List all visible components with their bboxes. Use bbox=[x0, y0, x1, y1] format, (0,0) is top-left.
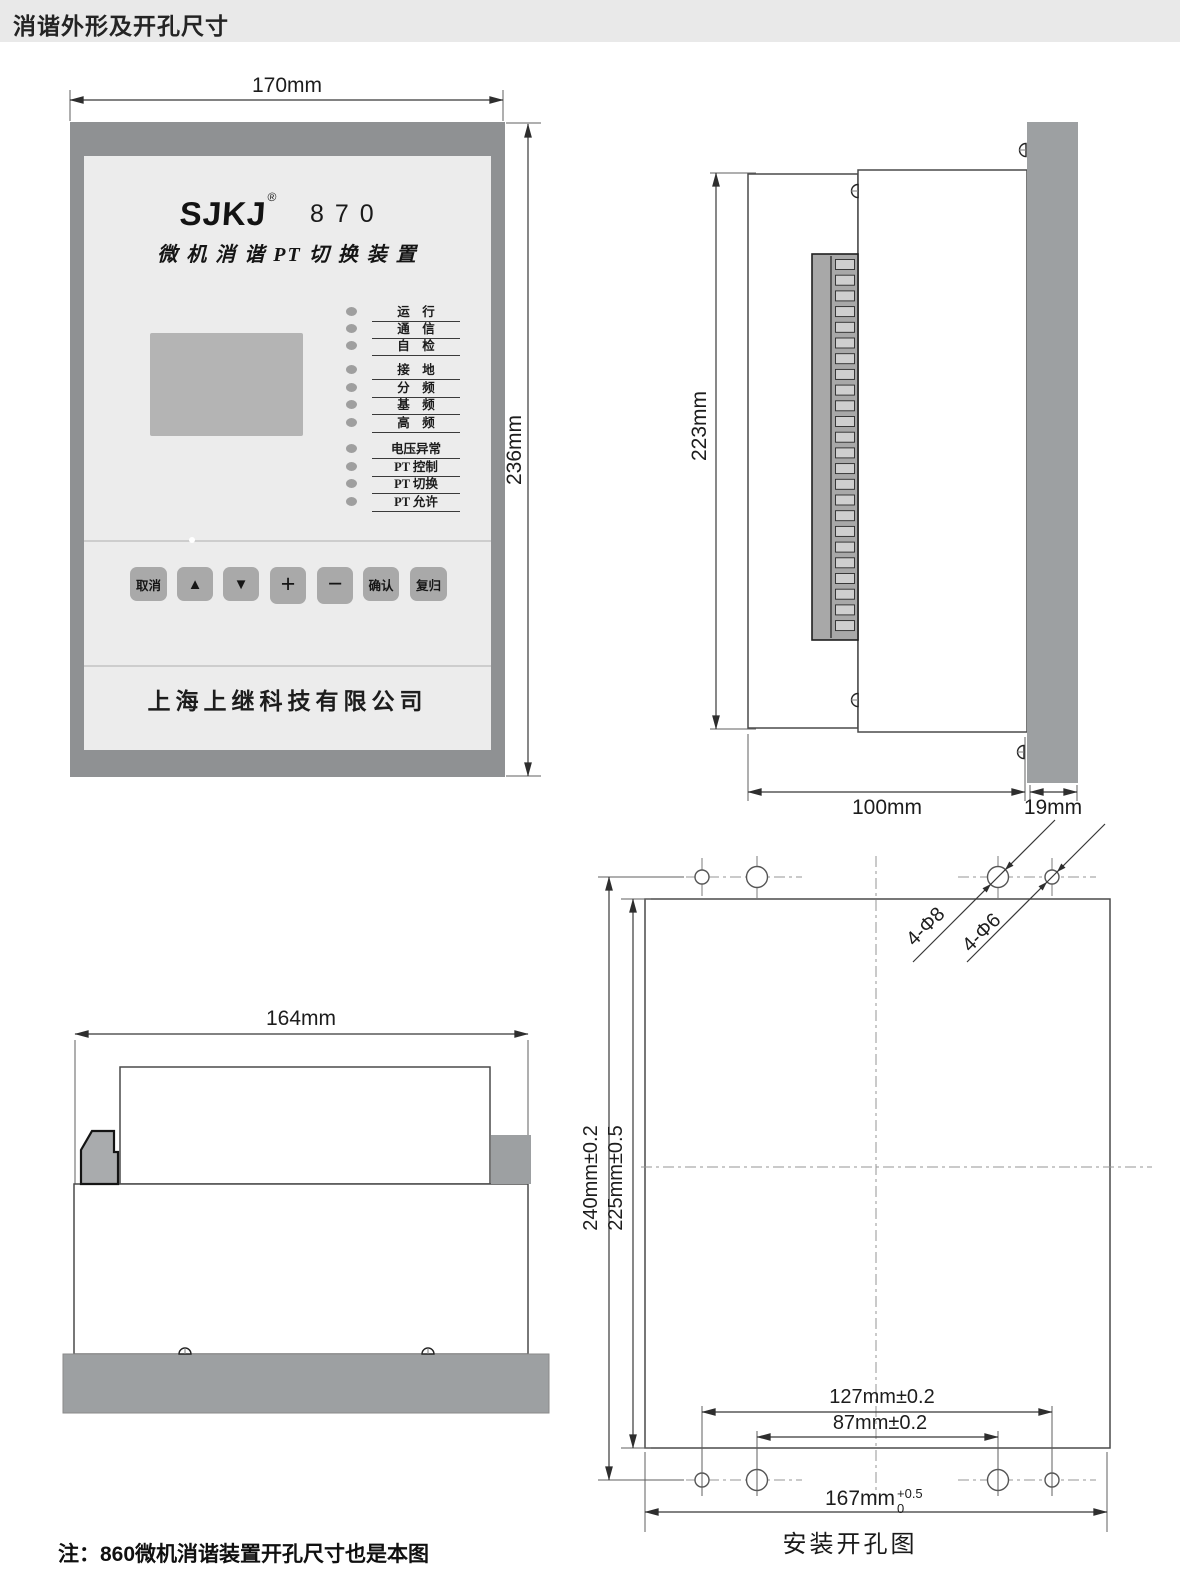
mounting-hole-large bbox=[747, 867, 768, 888]
side-rear-body-outline bbox=[748, 174, 858, 728]
device-title: 微 机 消 谐 PT 切 换 装 置 bbox=[84, 238, 491, 267]
top-view: 164mm bbox=[63, 1007, 549, 1413]
page-title: 消谐外形及开孔尺寸 bbox=[13, 7, 229, 41]
mounting-hole-small bbox=[695, 870, 709, 884]
top-right-block bbox=[491, 1135, 531, 1184]
button-up-icon: ▲ bbox=[177, 567, 213, 601]
led-indicator-icon bbox=[346, 400, 357, 409]
brand-logo: SJKJ® bbox=[178, 190, 276, 233]
mounting-hole-large bbox=[988, 867, 1009, 888]
page: 消谐外形及开孔尺寸 SJKJ® 870 微 机 消 谐 PT 切 换 装 置 运… bbox=[0, 0, 1180, 1575]
panel-divider bbox=[84, 665, 491, 667]
led-indicator-icon bbox=[346, 324, 357, 333]
led-indicator-icon bbox=[346, 444, 357, 453]
side-terminal-block bbox=[812, 254, 858, 640]
front-panel-face: SJKJ® 870 微 机 消 谐 PT 切 换 装 置 运 行 通 信 自 检… bbox=[84, 156, 491, 750]
mounting-holes bbox=[695, 867, 1059, 1491]
led-row: 接 地 bbox=[346, 361, 460, 377]
top-mounting-clip bbox=[81, 1131, 118, 1184]
button-plus: + bbox=[270, 567, 306, 604]
company-name: 上海上继科技有限公司 bbox=[84, 682, 491, 716]
centerlines bbox=[641, 856, 1152, 1503]
front-view-device: SJKJ® 870 微 机 消 谐 PT 切 换 装 置 运 行 通 信 自 检… bbox=[70, 122, 505, 777]
screw-icon bbox=[179, 1348, 434, 1354]
led-indicator-icon bbox=[346, 479, 357, 488]
install-view: 4-Φ8 4-Φ6 240mm±0.2 225mm±0.5 127mm±0.2 … bbox=[580, 820, 1152, 1532]
led-row: 电压异常 bbox=[346, 440, 460, 456]
hole-leader-large: 4-Φ8 bbox=[902, 820, 1055, 962]
led-label: 高 频 bbox=[372, 412, 460, 433]
cutout-width-tol-lower: 0 bbox=[897, 1501, 904, 1516]
led-indicator-icon bbox=[346, 307, 357, 316]
hole-leader-small: 4-Φ6 bbox=[958, 824, 1105, 962]
led-row: PT 允许 bbox=[346, 493, 460, 509]
top-front-panel-bar bbox=[63, 1354, 549, 1413]
small-holes-label: 4-Φ6 bbox=[958, 909, 1005, 956]
led-indicator-icon bbox=[346, 341, 357, 350]
top-rear-body-outline bbox=[120, 1067, 490, 1184]
mounting-hole-large bbox=[988, 1470, 1009, 1491]
front-height-dim-label: 236mm bbox=[503, 415, 526, 485]
led-indicator-icon bbox=[346, 365, 357, 374]
mounting-hole-small bbox=[1045, 870, 1059, 884]
hole-span-vertical-dim-label: 240mm±0.2 bbox=[580, 1125, 602, 1230]
front-width-dim-label: 170mm bbox=[252, 74, 322, 97]
led-row: 基 频 bbox=[346, 396, 460, 412]
led-row: PT 切换 bbox=[346, 475, 460, 491]
button-down-icon: ▼ bbox=[223, 567, 259, 601]
mounting-hole-small bbox=[695, 1473, 709, 1487]
led-row: 自 检 bbox=[346, 337, 460, 353]
side-main-body-outline bbox=[858, 170, 1027, 732]
registered-mark-icon: ® bbox=[267, 190, 277, 204]
cutout-width-tol-upper: +0.5 bbox=[897, 1486, 923, 1501]
footnote: 注：860微机消谐装置开孔尺寸也是本图 bbox=[58, 1538, 429, 1568]
led-row: 高 频 bbox=[346, 414, 460, 430]
led-indicator-icon bbox=[346, 383, 357, 392]
led-indicator-icon bbox=[346, 497, 357, 506]
led-indicator-icon bbox=[346, 418, 357, 427]
cutout-outline bbox=[645, 899, 1110, 1448]
top-main-body-outline bbox=[74, 1184, 528, 1354]
model-number: 870 bbox=[310, 200, 385, 229]
side-panel-thickness-dim-label: 19mm bbox=[1024, 796, 1082, 819]
panel-divider bbox=[84, 540, 491, 542]
screw-icon bbox=[851, 144, 1026, 759]
install-view-caption: 安装开孔图 bbox=[730, 1524, 970, 1559]
led-indicator-icon bbox=[346, 462, 357, 471]
button-confirm: 确认 bbox=[363, 567, 399, 601]
button-reset: 复归 bbox=[410, 567, 447, 601]
cutout-width-dim-label: 167mm bbox=[825, 1487, 895, 1510]
divider-dot bbox=[189, 537, 195, 543]
side-depth-dim-label: 100mm bbox=[852, 796, 922, 819]
large-holes-label: 4-Φ8 bbox=[902, 903, 949, 950]
outer-hole-span-dim-label: 127mm±0.2 bbox=[829, 1386, 934, 1408]
led-label: PT 允许 bbox=[372, 491, 460, 512]
mounting-hole-small bbox=[1045, 1473, 1059, 1487]
side-front-panel bbox=[1027, 122, 1078, 783]
button-cancel: 取消 bbox=[130, 567, 167, 601]
lcd-screen bbox=[150, 333, 303, 436]
side-height-dim-label: 223mm bbox=[688, 391, 711, 461]
led-label: 自 检 bbox=[372, 335, 460, 356]
page-header: 消谐外形及开孔尺寸 bbox=[0, 0, 1180, 42]
inner-hole-span-dim-label: 87mm±0.2 bbox=[833, 1412, 927, 1434]
mounting-hole-large bbox=[747, 1470, 768, 1491]
side-view: 223mm 100mm 19mm bbox=[688, 122, 1082, 819]
top-width-dim-label: 164mm bbox=[266, 1007, 336, 1030]
cutout-height-dim-label: 225mm±0.5 bbox=[605, 1125, 627, 1230]
hole-centerlines bbox=[664, 877, 1096, 1480]
button-minus: − bbox=[317, 567, 353, 604]
